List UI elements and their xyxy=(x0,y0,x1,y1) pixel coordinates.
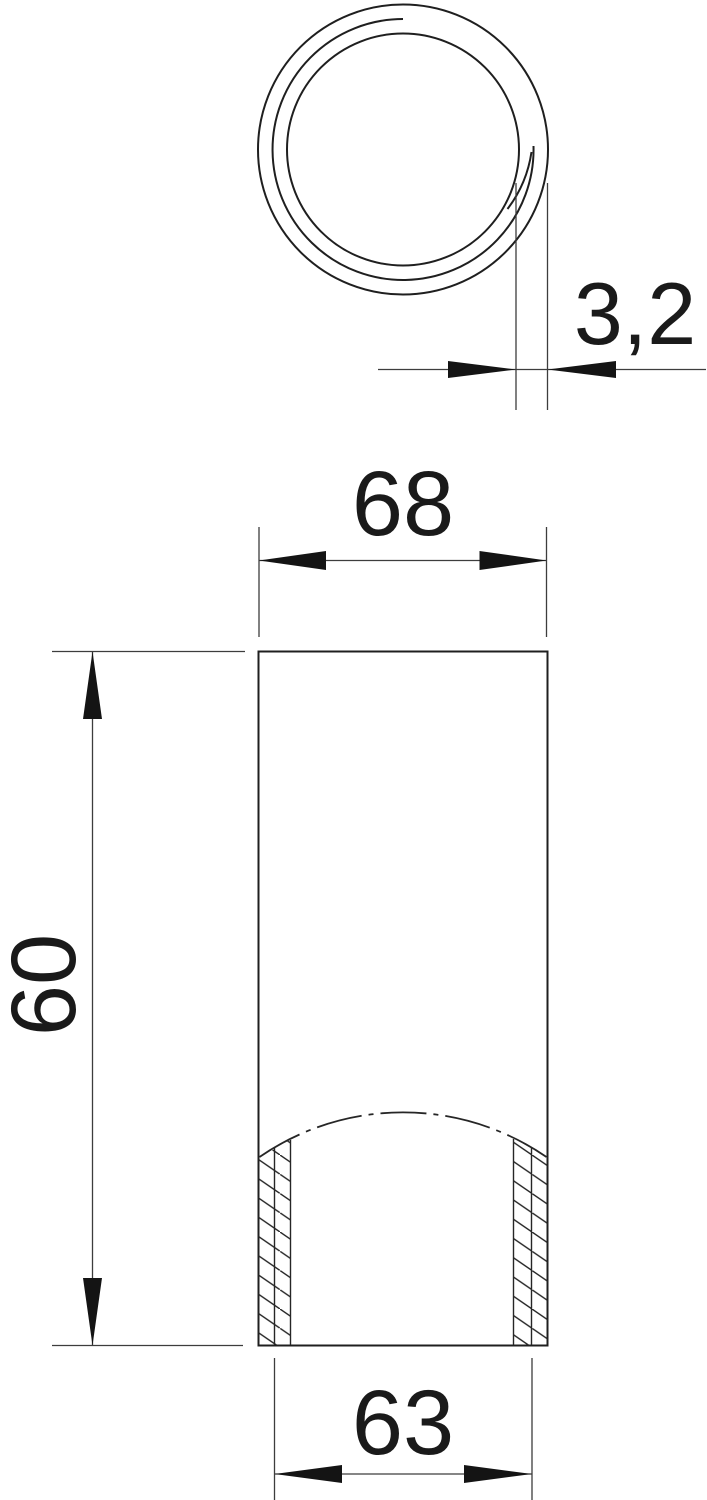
dim-label-wall-thickness: 3,2 xyxy=(565,270,705,358)
seam-arc xyxy=(508,152,532,209)
arrowhead-left-icon xyxy=(548,361,617,378)
dim-label-outer-width: 68 xyxy=(327,458,479,550)
inner-circle xyxy=(287,34,519,266)
top-view-cross-section xyxy=(258,5,548,295)
arrowhead-down-icon xyxy=(83,1278,102,1346)
arrowhead-right-icon xyxy=(448,361,516,378)
middle-spiral-arc xyxy=(273,19,534,280)
dim-label-inner-width: 63 xyxy=(327,1377,479,1469)
arrowhead-left-icon xyxy=(259,551,326,570)
hatch-band-right xyxy=(514,1139,548,1346)
dim-label-length: 60 xyxy=(0,909,90,1061)
technical-drawing-canvas xyxy=(0,0,707,1500)
arrowhead-up-icon xyxy=(83,652,102,720)
pipe-body-outline xyxy=(259,652,548,1346)
arrowhead-right-icon xyxy=(480,551,547,570)
outer-circle xyxy=(258,5,548,295)
front-view-side-section xyxy=(259,652,548,1346)
